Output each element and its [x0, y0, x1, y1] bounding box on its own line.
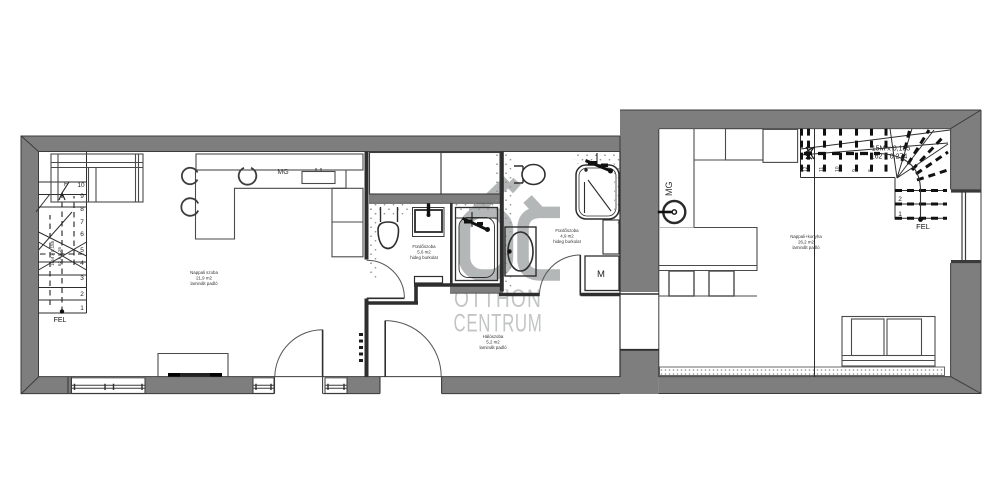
svg-text:62 x 0,26: 62 x 0,26	[57, 247, 62, 266]
svg-text:9: 9	[80, 193, 84, 200]
svg-text:16M x 0,185: 16M x 0,185	[50, 240, 55, 266]
svg-text:laminált padló: laminált padló	[479, 345, 507, 350]
svg-text:MG: MG	[277, 169, 288, 176]
svg-text:laminált padló: laminált padló	[190, 281, 218, 286]
svg-text:5,6 m2: 5,6 m2	[417, 250, 431, 255]
svg-text:26,2 m2: 26,2 m2	[798, 240, 814, 245]
svg-text:21,9 m2: 21,9 m2	[196, 276, 212, 281]
svg-text:Nappali szoba: Nappali szoba	[190, 270, 218, 275]
svg-text:5: 5	[80, 247, 84, 254]
svg-text:hideg burkolat: hideg burkolat	[553, 239, 581, 244]
svg-text:2: 2	[898, 196, 902, 203]
svg-text:11: 11	[819, 167, 825, 172]
svg-text:9: 9	[852, 169, 858, 172]
svg-text:162 x 0,274: 162 x 0,274	[871, 154, 908, 161]
svg-text:1: 1	[80, 305, 84, 312]
svg-text:15M x 0,185: 15M x 0,185	[872, 146, 911, 153]
svg-text:laminált padló: laminált padló	[792, 245, 820, 250]
svg-text:10: 10	[77, 182, 85, 189]
svg-text:3: 3	[80, 275, 84, 282]
svg-text:4,9 m2: 4,9 m2	[560, 234, 574, 239]
svg-text:4: 4	[80, 260, 84, 267]
svg-text:MG: MG	[664, 182, 674, 197]
svg-text:1: 1	[898, 211, 902, 218]
svg-text:FEL: FEL	[54, 317, 67, 324]
svg-text:5,2 m2: 5,2 m2	[486, 340, 500, 345]
svg-text:8: 8	[868, 169, 874, 172]
svg-text:Hálószoba: Hálószoba	[483, 334, 504, 339]
svg-text:F: F	[64, 181, 68, 188]
svg-text:7: 7	[80, 219, 84, 226]
svg-text:Fürdőszoba: Fürdőszoba	[412, 244, 436, 249]
svg-text:12: 12	[803, 166, 809, 172]
svg-text:10: 10	[835, 166, 841, 172]
svg-text:hideg burkolat: hideg burkolat	[410, 255, 438, 260]
svg-text:2: 2	[80, 291, 84, 298]
svg-text:6: 6	[80, 231, 84, 238]
svg-text:M: M	[597, 269, 605, 280]
svg-text:Nappali+konyha: Nappali+konyha	[790, 234, 822, 239]
svg-text:FEL: FEL	[916, 222, 930, 231]
svg-text:Fürdőszoba: Fürdőszoba	[555, 228, 579, 233]
svg-text:8: 8	[80, 206, 84, 213]
